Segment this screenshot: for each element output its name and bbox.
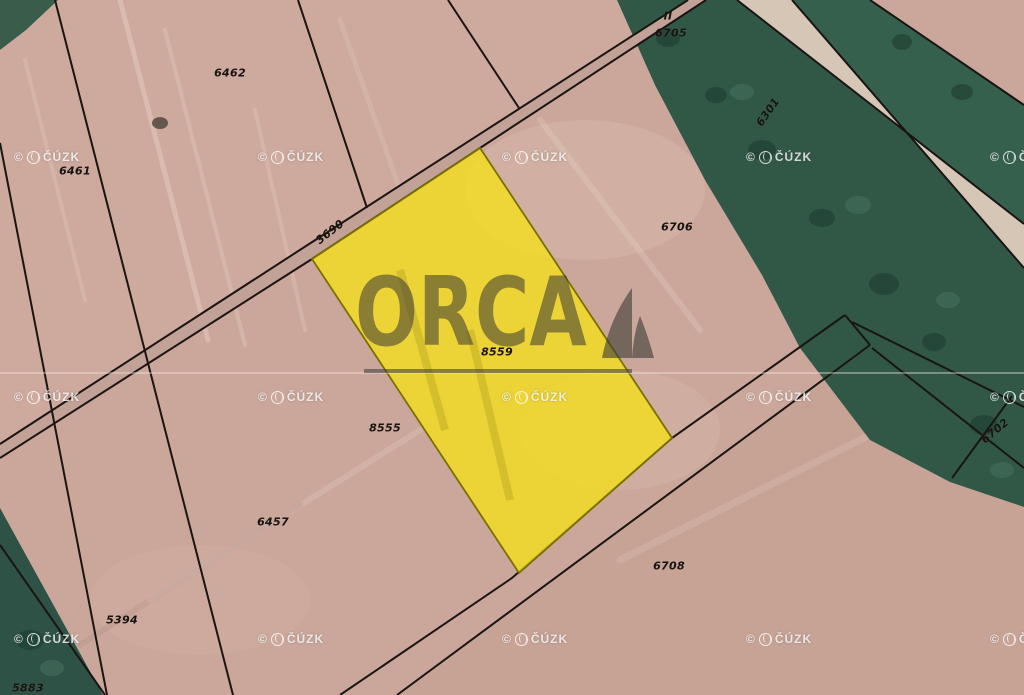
cuzk-globe-icon — [271, 151, 284, 164]
copyright-symbol: © — [746, 390, 756, 404]
cuzk-watermark: ©ČÚZK — [14, 632, 80, 646]
copyright-symbol: © — [14, 632, 24, 646]
cuzk-globe-icon — [27, 391, 40, 404]
cuzk-watermark-text: ČÚZK — [531, 632, 568, 646]
parcel-label: II — [664, 10, 673, 23]
parcel-label: 5394 — [106, 614, 138, 627]
cuzk-globe-icon — [515, 151, 528, 164]
cuzk-globe-icon — [271, 391, 284, 404]
cuzk-watermark-text: ČÚZK — [531, 150, 568, 164]
copyright-symbol: © — [502, 150, 512, 164]
parcel-label: 8555 — [369, 422, 401, 435]
copyright-symbol: © — [990, 390, 1000, 404]
cuzk-watermark: ©ČÚZK — [258, 390, 324, 404]
cuzk-watermark: ©ČÚZK — [990, 390, 1024, 404]
cuzk-watermark-text: ČÚZK — [1019, 632, 1024, 646]
copyright-symbol: © — [258, 632, 268, 646]
parcel-label: 6706 — [661, 221, 693, 234]
cuzk-globe-icon — [27, 633, 40, 646]
cuzk-globe-icon — [1003, 151, 1016, 164]
image-seam-line — [0, 372, 1024, 374]
cuzk-watermark: ©ČÚZK — [14, 390, 80, 404]
cuzk-watermark-text: ČÚZK — [775, 150, 812, 164]
cuzk-watermark: ©ČÚZK — [990, 150, 1024, 164]
copyright-symbol: © — [14, 390, 24, 404]
cuzk-watermark-text: ČÚZK — [1019, 390, 1024, 404]
cuzk-globe-icon — [1003, 391, 1016, 404]
cuzk-watermark-text: ČÚZK — [43, 150, 80, 164]
cuzk-watermark-text: ČÚZK — [43, 632, 80, 646]
copyright-symbol: © — [990, 150, 1000, 164]
copyright-symbol: © — [258, 390, 268, 404]
copyright-symbol: © — [502, 632, 512, 646]
cuzk-watermark: ©ČÚZK — [502, 150, 568, 164]
cuzk-watermark-text: ČÚZK — [287, 632, 324, 646]
parcel-label: 6461 — [59, 165, 91, 178]
copyright-symbol: © — [258, 150, 268, 164]
cuzk-watermark-text: ČÚZK — [287, 150, 324, 164]
cuzk-globe-icon — [759, 633, 772, 646]
cuzk-watermark-text: ČÚZK — [775, 390, 812, 404]
parcel-label: 6705 — [655, 27, 687, 40]
parcel-label: 6457 — [257, 516, 289, 529]
parcel-label: 8559 — [481, 346, 513, 359]
cuzk-globe-icon — [1003, 633, 1016, 646]
cuzk-globe-icon — [515, 633, 528, 646]
cuzk-watermark: ©ČÚZK — [990, 632, 1024, 646]
cuzk-watermark: ©ČÚZK — [258, 632, 324, 646]
copyright-symbol: © — [14, 150, 24, 164]
copyright-symbol: © — [990, 632, 1000, 646]
cuzk-watermark: ©ČÚZK — [746, 150, 812, 164]
cuzk-watermark-text: ČÚZK — [43, 390, 80, 404]
cuzk-watermark: ©ČÚZK — [502, 390, 568, 404]
bush-blob — [152, 117, 168, 129]
cuzk-watermark: ©ČÚZK — [746, 632, 812, 646]
cuzk-watermark-text: ČÚZK — [775, 632, 812, 646]
cuzk-globe-icon — [759, 151, 772, 164]
parcel-label: 5883 — [12, 682, 44, 695]
cuzk-globe-icon — [759, 391, 772, 404]
cuzk-globe-icon — [271, 633, 284, 646]
cuzk-watermark: ©ČÚZK — [746, 390, 812, 404]
cuzk-watermark: ©ČÚZK — [258, 150, 324, 164]
cuzk-watermark: ©ČÚZK — [502, 632, 568, 646]
cuzk-watermark-text: ČÚZK — [1019, 150, 1024, 164]
parcel-label: 6462 — [214, 67, 246, 80]
cuzk-watermark-text: ČÚZK — [287, 390, 324, 404]
copyright-symbol: © — [746, 632, 756, 646]
cuzk-watermark-text: ČÚZK — [531, 390, 568, 404]
copyright-symbol: © — [746, 150, 756, 164]
cuzk-globe-icon — [515, 391, 528, 404]
copyright-symbol: © — [502, 390, 512, 404]
parcel-label: 6708 — [653, 560, 685, 573]
cadastral-map-canvas[interactable]: ORCA 64626461II6705630167063690855985556… — [0, 0, 1024, 695]
cuzk-watermark: ©ČÚZK — [14, 150, 80, 164]
cuzk-globe-icon — [27, 151, 40, 164]
